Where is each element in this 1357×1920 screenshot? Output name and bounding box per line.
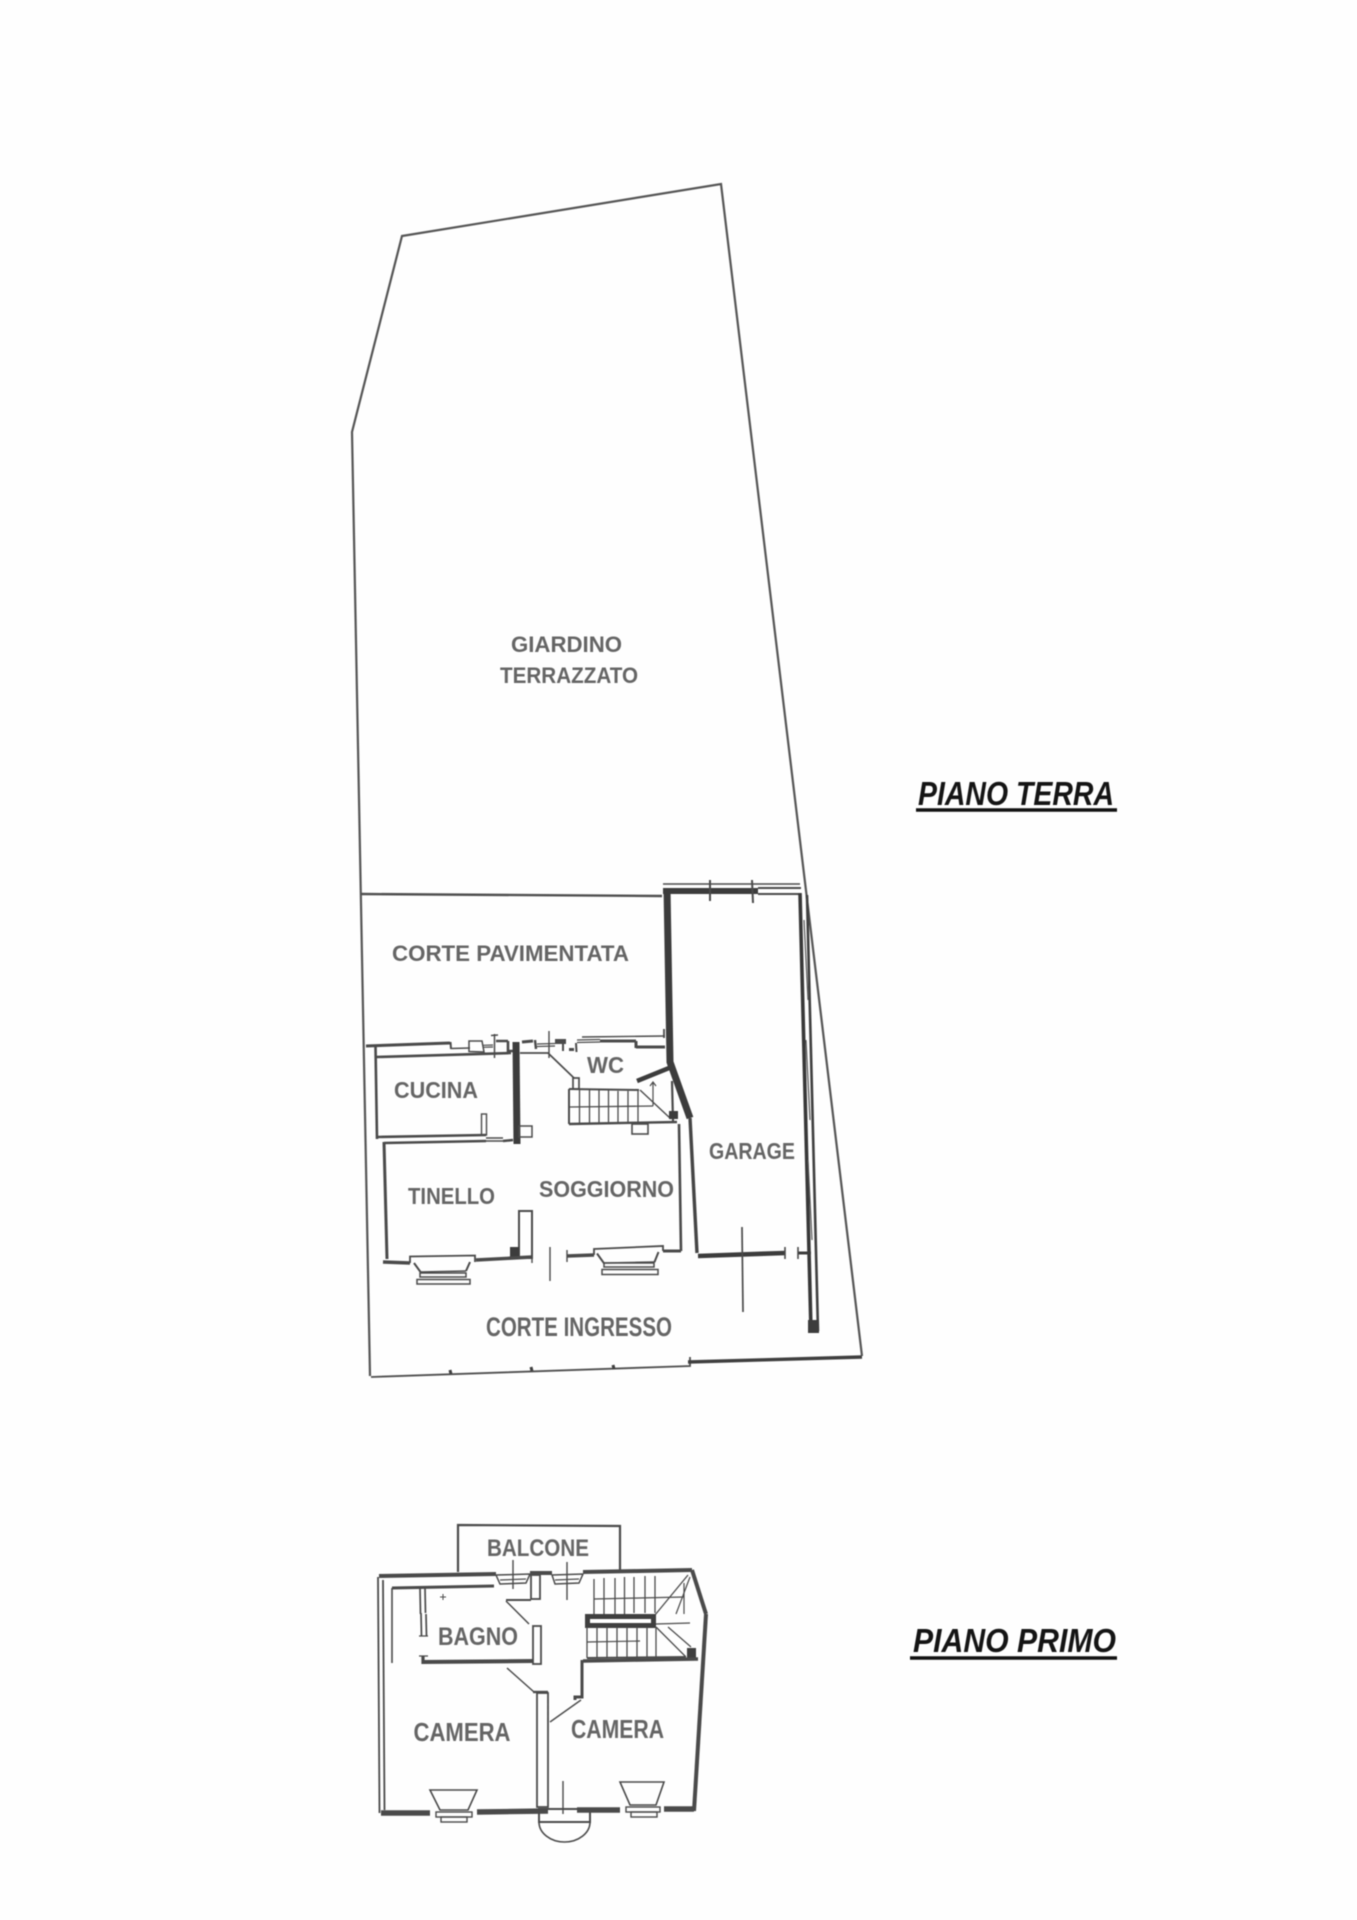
svg-text:BAGNO: BAGNO (438, 1623, 518, 1651)
svg-text:TERRAZZATO: TERRAZZATO (500, 663, 638, 688)
svg-text:CORTE INGRESSO: CORTE INGRESSO (486, 1312, 672, 1342)
svg-text:SOGGIORNO: SOGGIORNO (539, 1176, 674, 1202)
svg-text:GIARDINO: GIARDINO (511, 632, 622, 657)
svg-text:PIANO PRIMO: PIANO PRIMO (913, 1623, 1116, 1660)
svg-text:CORTE PAVIMENTATA: CORTE PAVIMENTATA (392, 941, 629, 966)
svg-text:TINELLO: TINELLO (408, 1183, 495, 1209)
svg-text:PIANO TERRA: PIANO TERRA (918, 776, 1114, 813)
svg-text:CAMERA: CAMERA (571, 1714, 664, 1744)
svg-text:CUCINA: CUCINA (394, 1077, 478, 1103)
svg-text:GARAGE: GARAGE (709, 1138, 795, 1164)
svg-text:WC: WC (587, 1052, 624, 1078)
svg-text:CAMERA: CAMERA (414, 1717, 511, 1747)
svg-text:BALCONE: BALCONE (487, 1535, 589, 1562)
